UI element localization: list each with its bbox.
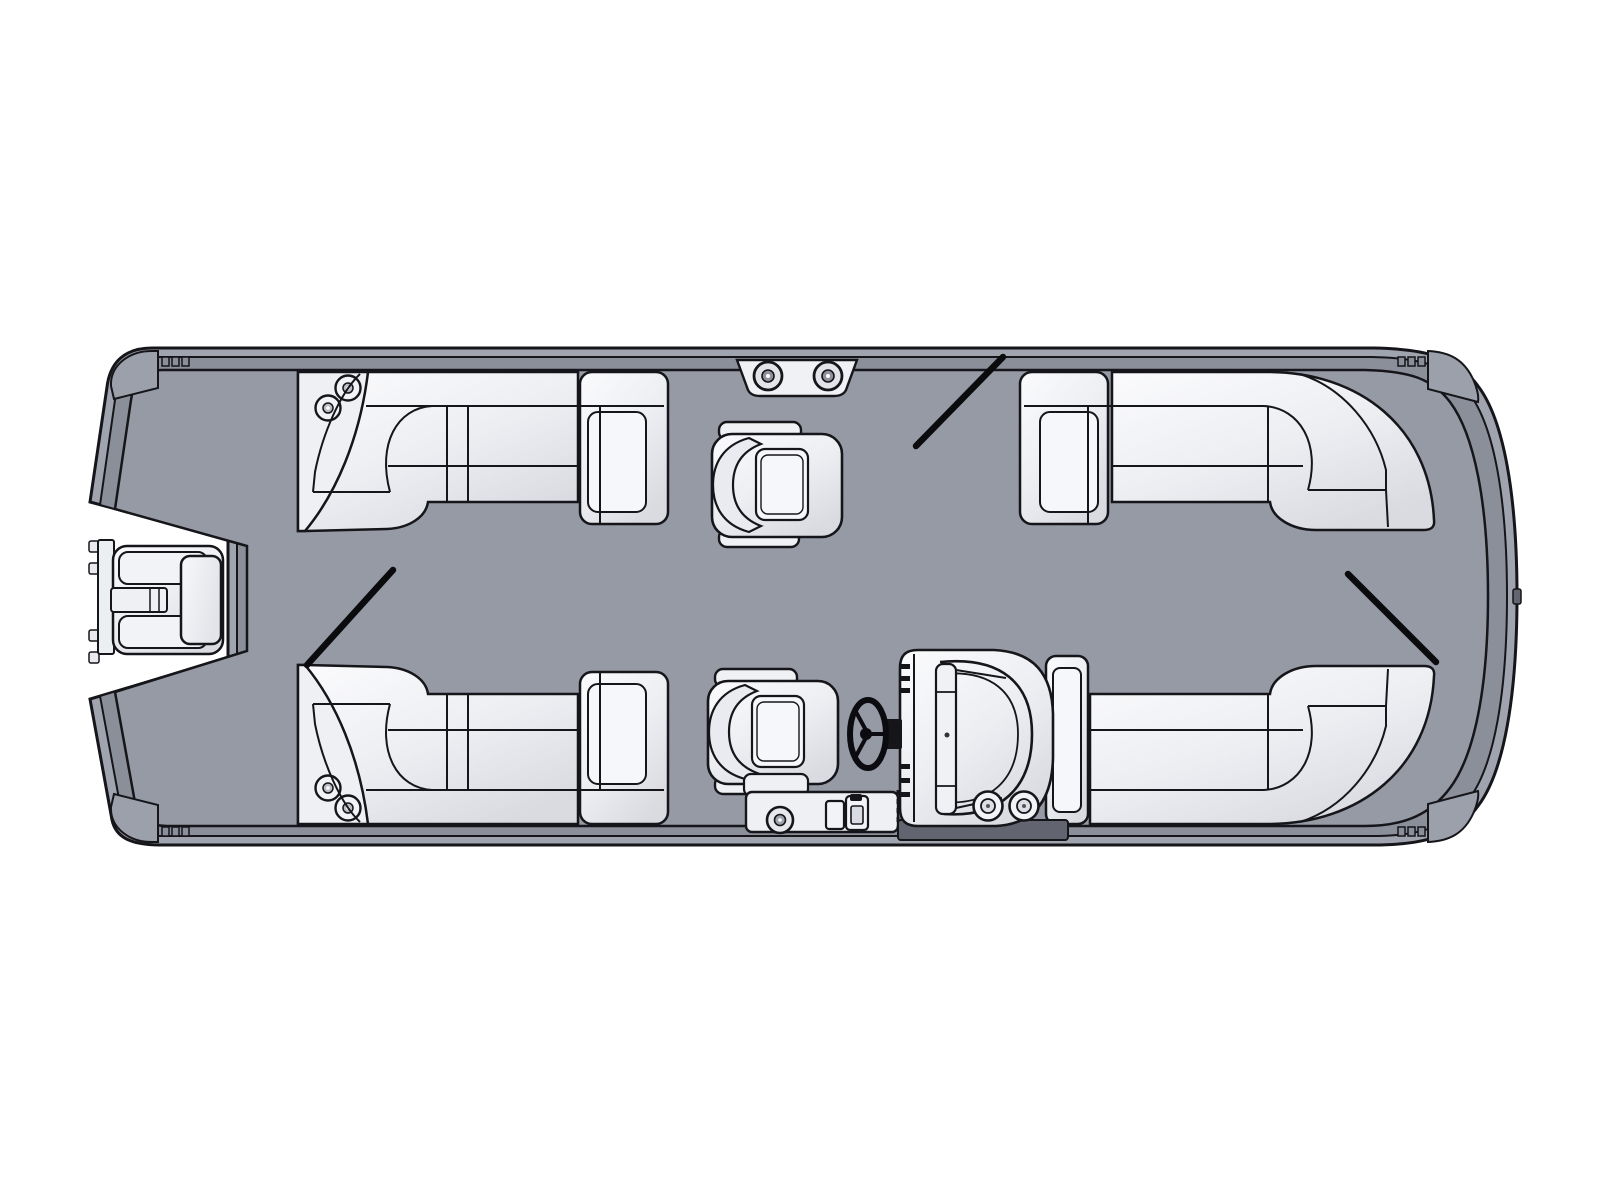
boat (89, 348, 1521, 845)
captain-chair-top (712, 422, 842, 547)
pontoon-floorplan-diagram (0, 0, 1600, 1200)
boarding-step-top (737, 360, 857, 396)
bow-nav-light (1513, 589, 1521, 604)
chair-seat-cushion (756, 449, 808, 520)
floorplan-svg (0, 0, 1600, 1200)
chair-seat-cushion (752, 696, 804, 767)
motor-cowl (181, 556, 221, 644)
console-frame-bar (936, 664, 956, 814)
outboard-motor (89, 540, 223, 663)
